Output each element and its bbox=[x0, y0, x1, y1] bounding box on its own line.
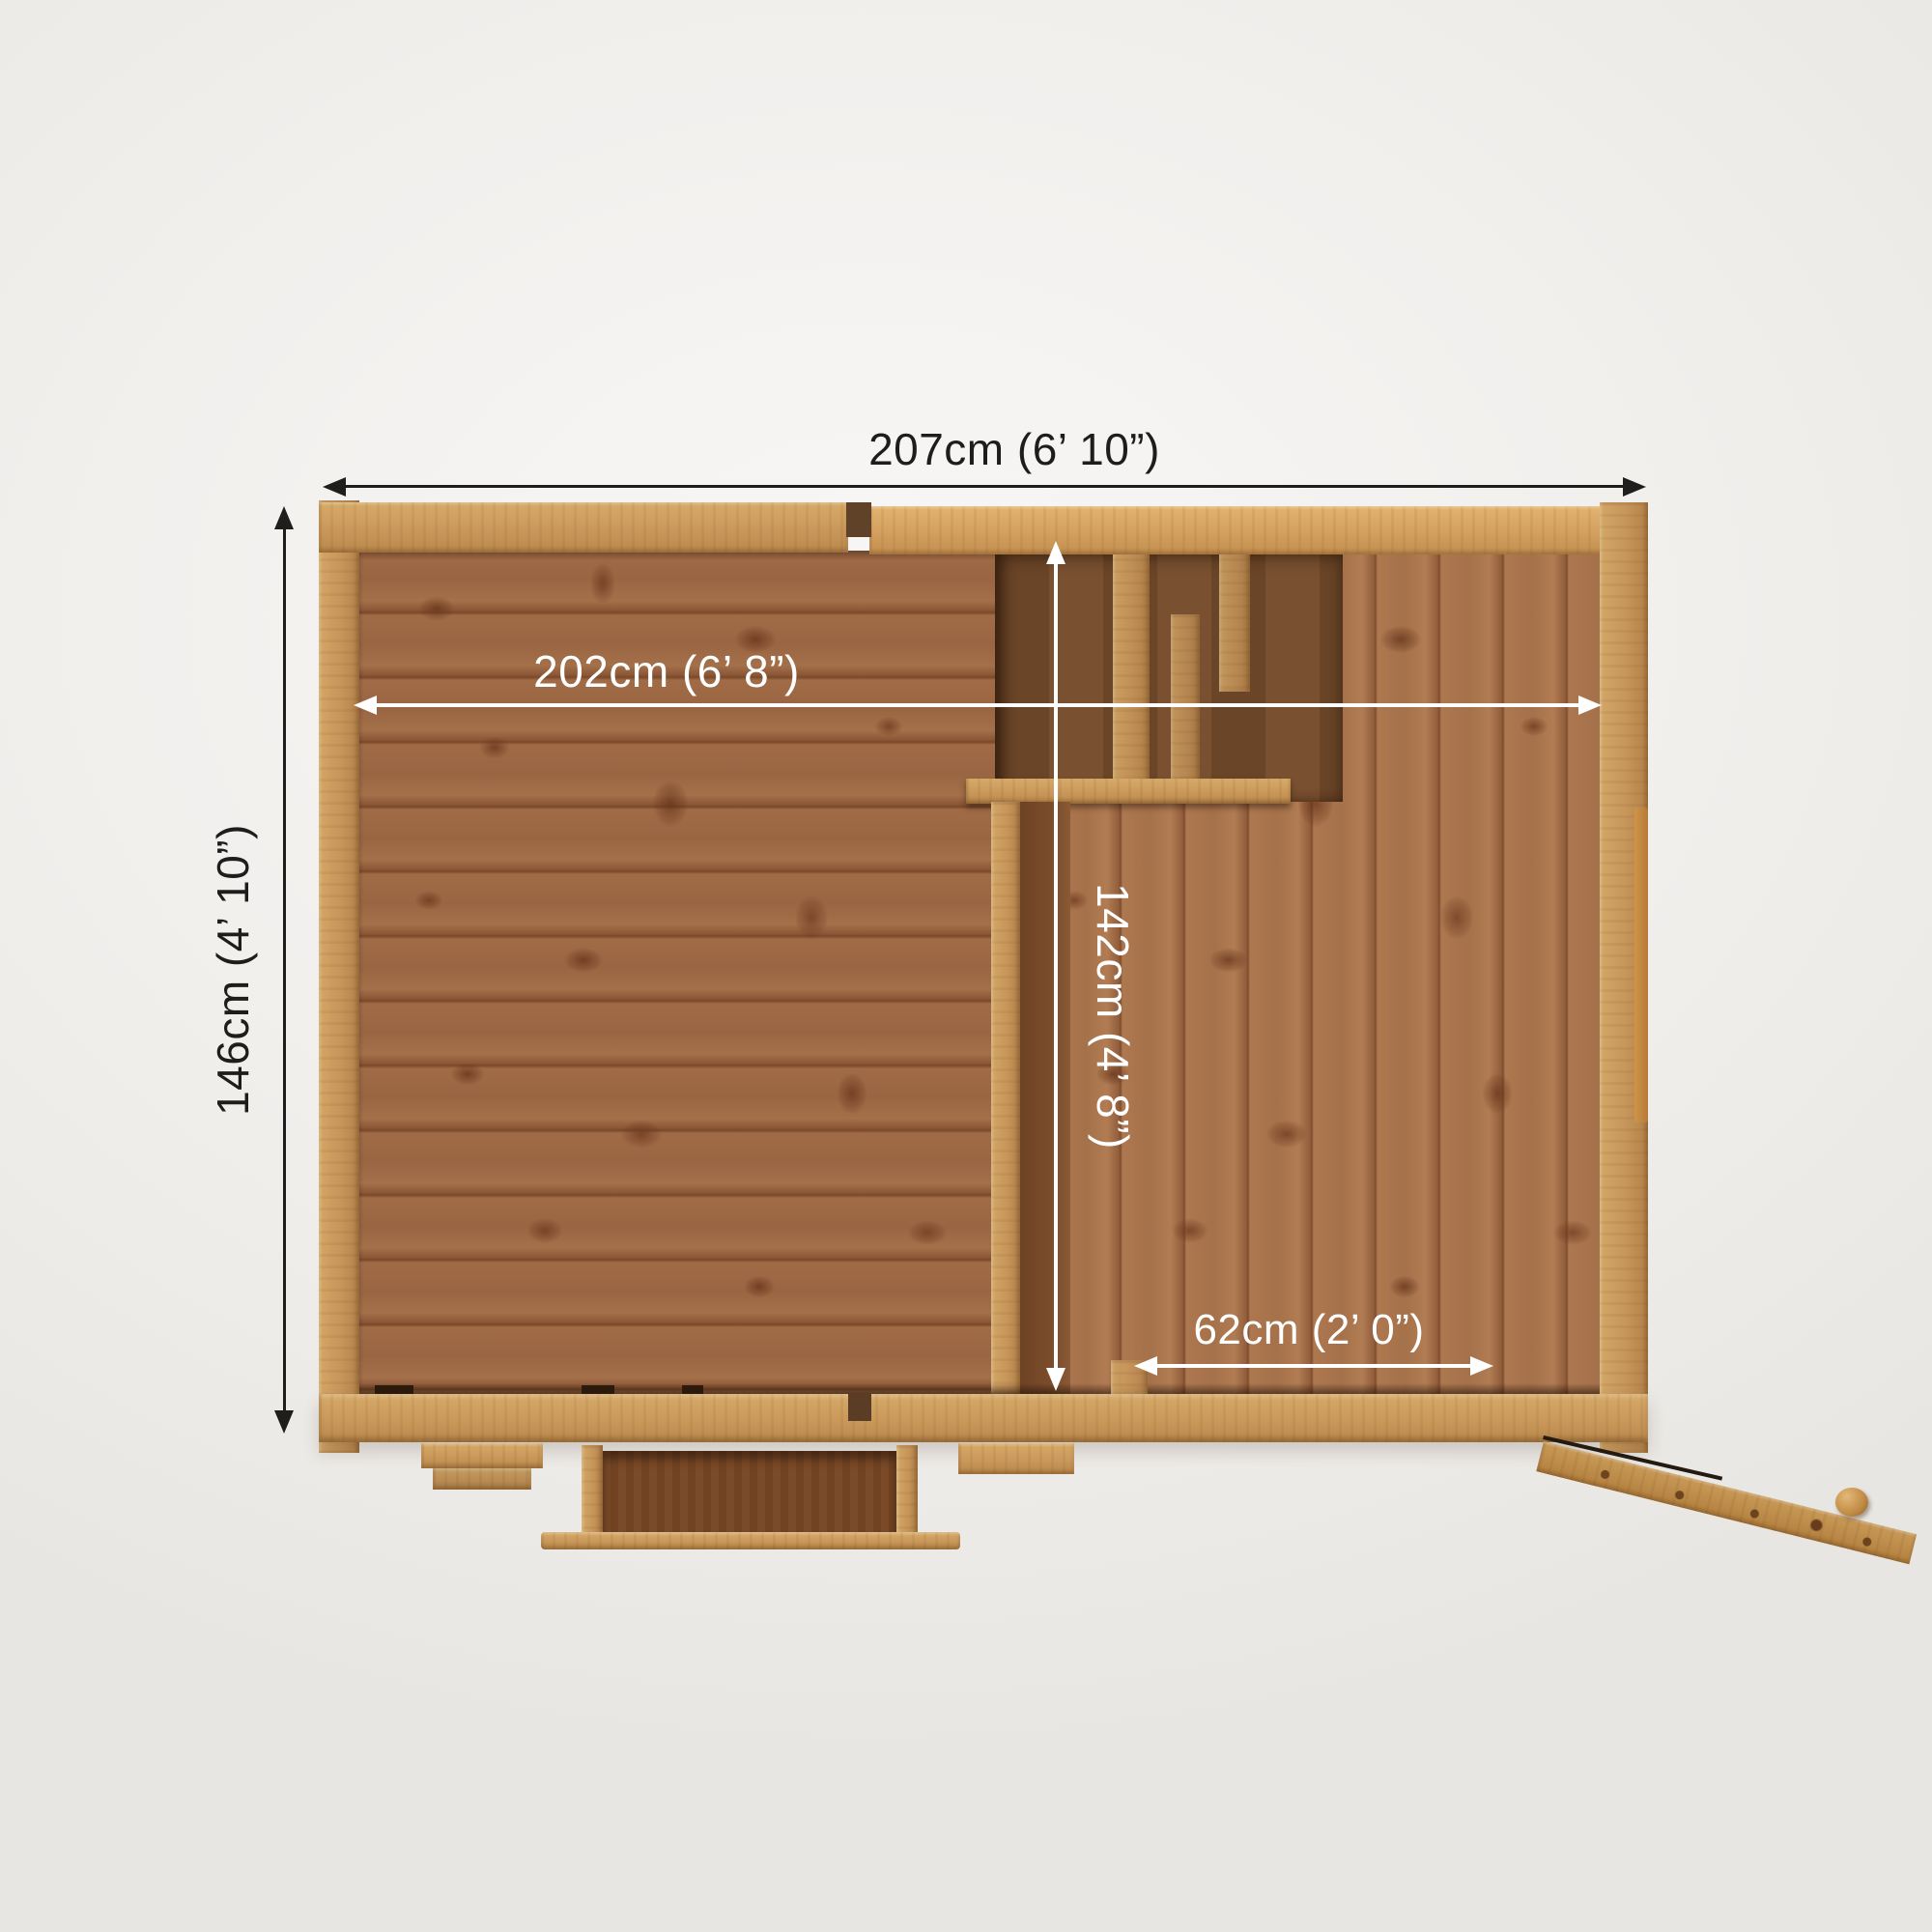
right-step-board bbox=[958, 1443, 1074, 1474]
staging-stud bbox=[1219, 547, 1250, 692]
ramp-base-board bbox=[541, 1532, 960, 1549]
left-step-board bbox=[421, 1443, 543, 1468]
left-step-board-lower bbox=[433, 1468, 531, 1490]
dim-overall-depth-arrowhead-bottom bbox=[274, 1410, 294, 1434]
dim-overall-width-arrowhead-left bbox=[323, 477, 346, 497]
partition-wall bbox=[991, 802, 1020, 1395]
dim-internal-depth-line bbox=[1054, 556, 1058, 1376]
ramp-recessed-panel bbox=[603, 1451, 896, 1534]
staging-stud bbox=[1171, 614, 1200, 802]
staging-stud bbox=[1113, 547, 1150, 802]
partition-beam bbox=[966, 779, 1291, 804]
dim-internal-depth-arrowhead-top bbox=[1046, 541, 1065, 564]
dim-overall-width-arrowhead-right bbox=[1623, 477, 1646, 497]
dim-side-storage-arrowhead-right bbox=[1470, 1356, 1493, 1376]
dim-overall-width-label: 207cm (6’ 10”) bbox=[676, 423, 1352, 475]
dim-internal-width-arrowhead-right bbox=[1578, 696, 1602, 715]
ramp-rail-right bbox=[896, 1445, 918, 1536]
wall-top-left-section bbox=[319, 502, 848, 553]
dim-overall-depth-label: 146cm (4’ 10”) bbox=[207, 824, 259, 1116]
dim-internal-width-label: 202cm (6’ 8”) bbox=[367, 645, 966, 697]
dim-internal-width-line bbox=[369, 703, 1584, 707]
dim-side-storage-arrowhead-left bbox=[1134, 1356, 1157, 1376]
door-jamb-strip bbox=[1634, 808, 1648, 1122]
dim-side-storage-line bbox=[1150, 1364, 1476, 1368]
dim-overall-depth-arrowhead-top bbox=[274, 506, 294, 529]
dim-internal-width-arrowhead-left bbox=[354, 696, 377, 715]
wall-bottom-joint-notch bbox=[848, 1394, 871, 1421]
dim-overall-width-line bbox=[338, 485, 1629, 488]
wall-top-right-section bbox=[869, 506, 1648, 554]
ramp-rail-left bbox=[582, 1445, 603, 1536]
dim-overall-depth-line bbox=[283, 522, 286, 1418]
staging-recess bbox=[995, 547, 1343, 802]
dim-side-storage-label: 62cm (2’ 0”) bbox=[1063, 1306, 1555, 1354]
product-dimension-diagram: 207cm (6’ 10”) 146cm (4’ 10”) 202cm (6’ … bbox=[0, 0, 1932, 1932]
dim-internal-depth-label: 142cm (4’ 8”) bbox=[1087, 883, 1139, 1150]
dim-internal-depth-arrowhead-bottom bbox=[1046, 1368, 1065, 1391]
door-knob bbox=[1835, 1488, 1868, 1517]
wall-top-joint-notch bbox=[846, 502, 871, 537]
wall-left bbox=[319, 500, 359, 1453]
wall-bottom bbox=[319, 1394, 1648, 1442]
